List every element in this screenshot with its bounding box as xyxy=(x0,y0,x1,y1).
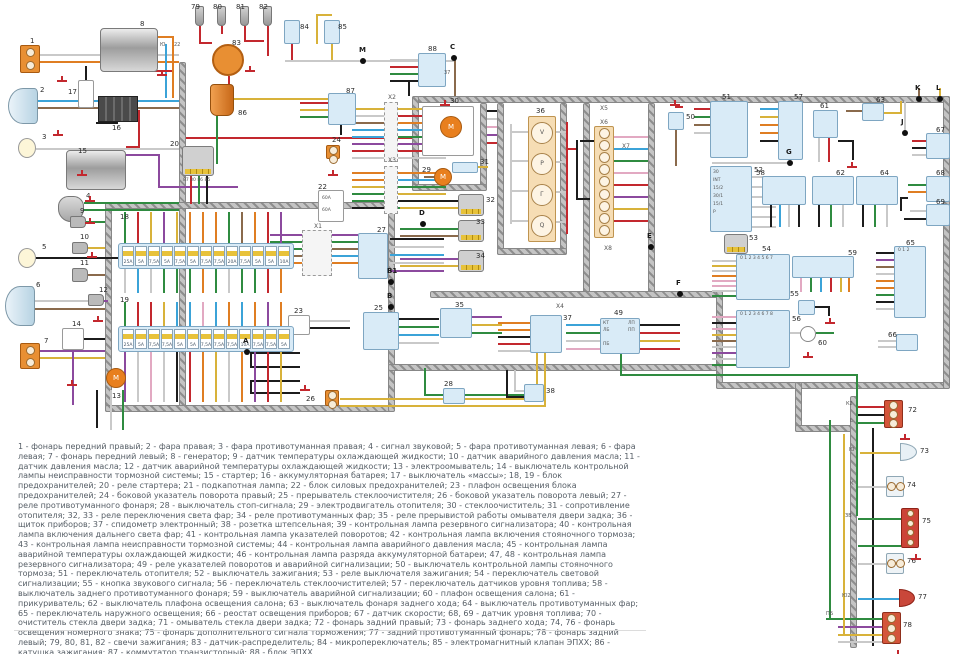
junction-node-B xyxy=(388,304,394,310)
wire-segment xyxy=(614,148,648,150)
wire-segment xyxy=(352,150,384,152)
junction-label-M: M xyxy=(359,46,366,54)
lamp-cell-icon xyxy=(329,146,338,155)
lamp-cell-icon xyxy=(907,539,914,546)
wire-label: 15/2 xyxy=(713,186,723,193)
wire-label: ПП xyxy=(628,328,635,335)
wire-segment xyxy=(228,212,230,243)
wire-segment xyxy=(862,205,864,227)
wire-segment xyxy=(189,302,191,326)
wire-segment xyxy=(694,108,710,110)
wire-segment xyxy=(244,26,246,40)
component-number-31: 31 xyxy=(480,158,489,166)
component-9 xyxy=(70,216,86,228)
lamp-cell-icon xyxy=(907,520,914,527)
wire-segment xyxy=(614,160,648,162)
wire-label: 60A xyxy=(322,208,331,215)
wire-segment xyxy=(454,60,456,96)
wire-segment xyxy=(163,352,165,402)
wire-segment xyxy=(838,641,882,643)
wire-label: КТ xyxy=(603,321,609,328)
indicator-lamp-icon xyxy=(599,213,610,224)
gauge-Q: Q xyxy=(531,215,553,237)
wire-segment xyxy=(189,212,191,243)
wire-segment xyxy=(840,278,842,292)
wire-segment xyxy=(352,200,384,202)
component-29: M xyxy=(434,168,452,186)
fuse-F9: 20A xyxy=(226,246,238,266)
wire-segment xyxy=(390,59,418,61)
wire-segment xyxy=(912,147,926,149)
wire-segment xyxy=(189,269,191,293)
wire-label: Ю2 xyxy=(842,593,851,601)
wire-label: L xyxy=(850,418,853,426)
ground-icon xyxy=(57,76,67,83)
lamp-cell-icon xyxy=(887,614,896,623)
component-22 xyxy=(318,190,344,222)
wire-segment xyxy=(856,376,858,516)
wire-label: ЛП xyxy=(628,321,635,328)
component-number-65: 65 xyxy=(906,239,915,247)
wire-label: 87 30 86 85 xyxy=(183,178,210,185)
wire-segment xyxy=(828,306,830,316)
ground-icon xyxy=(53,130,63,137)
wire-segment xyxy=(215,352,217,402)
wire-label: X7 xyxy=(622,142,630,151)
wire-segment xyxy=(566,332,600,334)
ground-icon xyxy=(803,352,813,359)
wire-segment xyxy=(472,324,502,326)
wire-segment xyxy=(398,157,446,159)
component-66 xyxy=(896,334,918,351)
wire-segment xyxy=(510,124,512,224)
component-83 xyxy=(212,44,244,76)
wire-label: 30/1 xyxy=(713,194,723,201)
wire-segment xyxy=(760,132,778,134)
wire-segment xyxy=(912,140,926,142)
wire-segment xyxy=(408,82,410,96)
wire-segment xyxy=(614,208,648,210)
wire-segment xyxy=(332,248,358,250)
wire-segment xyxy=(858,406,884,408)
wire-segment xyxy=(640,340,680,342)
wire-label: 30 xyxy=(713,170,719,177)
harness-bus xyxy=(480,103,487,191)
component-number-2: 2 xyxy=(40,86,44,94)
fuse-F21: 5A xyxy=(187,329,199,349)
component-28 xyxy=(443,388,465,404)
indicator-lamp-icon xyxy=(599,140,610,151)
wire-segment xyxy=(506,396,524,398)
fuse-F27: 7,5A xyxy=(265,329,277,349)
component-number-68: 68 xyxy=(936,169,945,177)
wire-segment xyxy=(202,302,204,326)
wire-segment xyxy=(137,302,139,326)
junction-node-G xyxy=(787,160,793,166)
wire-segment xyxy=(332,234,358,236)
wire-segment xyxy=(400,235,458,237)
fuse-F19: 7,5A xyxy=(161,329,173,349)
wire-segment xyxy=(712,295,736,297)
wire-segment xyxy=(254,352,256,402)
component-number-18: 18 xyxy=(120,213,129,221)
wire-segment xyxy=(815,306,829,308)
component-number-30: 30 xyxy=(450,97,459,105)
wire-segment xyxy=(472,332,502,334)
component-number-82: 82 xyxy=(259,3,268,11)
wire-segment xyxy=(556,191,566,193)
component-76 xyxy=(886,553,904,574)
wire-segment xyxy=(556,161,566,163)
junction-label-E: E xyxy=(647,232,652,240)
harness-bus xyxy=(179,62,186,410)
lamp-cell-icon xyxy=(26,358,35,367)
component-number-37: 37 xyxy=(563,314,572,322)
component-number-77: 77 xyxy=(918,593,927,601)
junction-node-C xyxy=(451,55,457,61)
wire-segment xyxy=(352,136,384,138)
wire-segment xyxy=(390,66,418,68)
fuse-F23: 7,5A xyxy=(213,329,225,349)
wire-segment xyxy=(826,618,882,620)
wire-segment xyxy=(640,332,680,334)
wire-segment xyxy=(352,157,384,159)
component-number-7: 7 xyxy=(44,337,48,345)
wire-segment xyxy=(390,262,444,264)
fuse-F11: 5A xyxy=(252,246,264,266)
wire-segment xyxy=(798,205,800,227)
fuse-F24: 7,5A xyxy=(226,329,238,349)
wire-segment xyxy=(900,197,908,199)
wire-segment xyxy=(752,226,776,228)
junction-node-B1 xyxy=(388,279,394,285)
wire-segment xyxy=(860,452,900,454)
component-number-11: 11 xyxy=(80,259,89,267)
indicator-lamp-icon xyxy=(599,201,610,212)
component-number-12: 12 xyxy=(99,286,108,294)
wire-segment xyxy=(556,221,566,223)
ground-icon xyxy=(67,380,77,387)
fuse-F28: 5A xyxy=(278,329,290,349)
wire-segment xyxy=(84,202,179,204)
wire-segment xyxy=(878,340,896,342)
wire-segment xyxy=(216,116,218,164)
junction-label-L: L xyxy=(936,84,940,92)
wire-segment xyxy=(620,374,858,376)
component-number-86: 86 xyxy=(238,109,247,117)
fuse-F5: 7,5A xyxy=(174,246,186,266)
component-number-1: 1 xyxy=(30,37,34,45)
wire-segment xyxy=(176,269,178,293)
harness-bus xyxy=(795,425,857,432)
component-61 xyxy=(813,110,838,138)
harness-bus xyxy=(583,103,590,298)
wire-segment xyxy=(300,102,328,104)
fuse-F18: 7,5A xyxy=(148,329,160,349)
component-number-61: 61 xyxy=(820,102,829,110)
component-number-9: 9 xyxy=(80,207,84,215)
component-number-64: 64 xyxy=(880,169,889,177)
wire-segment xyxy=(241,269,243,293)
junction-node-K xyxy=(916,96,922,102)
wire-segment xyxy=(250,352,300,354)
wire-label: X5 xyxy=(600,104,608,113)
wire-segment xyxy=(830,205,832,227)
component-number-57: 57 xyxy=(794,93,803,101)
component-X2 xyxy=(384,102,398,162)
component-number-80: 80 xyxy=(213,3,222,11)
wire-segment xyxy=(576,198,590,200)
wire-segment xyxy=(390,73,418,75)
wire-segment xyxy=(158,154,160,188)
junction-label-B: B xyxy=(387,292,392,300)
wire-segment xyxy=(126,154,160,156)
wire-segment xyxy=(640,348,680,350)
component-17 xyxy=(78,80,94,108)
junction-label-B1: B1 xyxy=(387,267,397,275)
wire-segment xyxy=(487,126,497,128)
component-number-38: 38 xyxy=(546,387,555,395)
wire-segment xyxy=(352,179,384,181)
component-86 xyxy=(210,84,234,116)
wire-segment xyxy=(340,405,546,407)
junction-node-F xyxy=(677,291,683,297)
wire-segment xyxy=(228,269,230,293)
wire-segment xyxy=(712,275,736,277)
wire-segment xyxy=(910,210,926,212)
component-37 xyxy=(530,315,562,353)
component-number-69: 69 xyxy=(936,198,945,206)
fuse-F26: 7,5A xyxy=(252,329,264,349)
wire-segment xyxy=(846,110,862,112)
component-55 xyxy=(798,300,815,315)
wire-segment xyxy=(556,131,566,133)
wire-segment xyxy=(876,252,894,254)
wire-segment xyxy=(576,140,578,200)
component-number-84: 84 xyxy=(300,23,309,31)
component-number-75: 75 xyxy=(922,517,931,525)
ground-icon xyxy=(300,385,310,392)
wire-segment xyxy=(202,352,204,402)
ground-icon xyxy=(87,252,97,259)
wire-segment xyxy=(310,327,350,329)
component-8 xyxy=(100,28,158,72)
wire-segment xyxy=(752,206,776,208)
component-10 xyxy=(72,242,88,254)
wire-segment xyxy=(215,269,217,293)
lamp-cell-icon xyxy=(889,419,898,428)
wire-segment xyxy=(250,366,300,368)
component-number-63: 63 xyxy=(876,96,885,104)
wire-segment xyxy=(512,190,528,192)
wire-label: X6 xyxy=(600,118,608,127)
wire-segment xyxy=(694,116,710,118)
wire-segment xyxy=(390,238,444,240)
wire-segment xyxy=(788,205,790,227)
component-3 xyxy=(18,138,36,158)
wire-segment xyxy=(712,316,736,318)
component-number-51: 51 xyxy=(722,93,731,101)
wire-segment xyxy=(712,334,736,336)
component-58 xyxy=(762,176,806,205)
wire-segment xyxy=(137,212,139,243)
wire-segment xyxy=(332,241,358,243)
wire-segment xyxy=(352,143,384,145)
component-88 xyxy=(418,53,446,87)
wire-label: К2 xyxy=(846,401,853,409)
harness-bus xyxy=(648,103,655,298)
wire-segment xyxy=(126,146,140,148)
component-51 xyxy=(710,101,748,158)
wire-segment xyxy=(150,212,152,243)
fuse-F6: 5A xyxy=(187,246,199,266)
harness-bus xyxy=(716,382,950,389)
lamp-cell-icon xyxy=(887,482,896,491)
wire-segment xyxy=(908,184,926,186)
wire-segment xyxy=(566,340,600,342)
component-62 xyxy=(812,176,854,205)
component-31 xyxy=(452,162,478,173)
component-number-20: 20 xyxy=(170,140,179,148)
wire-segment xyxy=(176,302,178,326)
wire-segment xyxy=(400,228,458,230)
component-X3 xyxy=(384,166,398,214)
wire-segment xyxy=(96,390,98,428)
component-32 xyxy=(458,194,484,216)
wire-segment xyxy=(291,44,293,60)
wire-segment xyxy=(580,140,594,142)
lamp-cell-icon xyxy=(887,559,896,568)
wire-segment xyxy=(712,280,736,282)
fuse-F20: 5A xyxy=(174,329,186,349)
wire-segment xyxy=(340,125,342,135)
wire-segment xyxy=(487,134,497,136)
component-77 xyxy=(899,589,915,607)
component-13: M xyxy=(106,368,126,388)
wire-segment xyxy=(399,342,439,344)
wire-segment xyxy=(712,285,736,287)
wire-segment xyxy=(828,138,830,162)
wire-segment xyxy=(566,122,568,234)
wire-segment xyxy=(614,184,648,186)
wire-label: X3 xyxy=(388,156,396,165)
junction-node-L xyxy=(937,96,943,102)
wire-segment xyxy=(250,352,252,366)
wire-segment xyxy=(163,212,165,243)
component-X7s xyxy=(594,126,614,238)
wire-segment xyxy=(138,110,140,146)
component-number-72: 72 xyxy=(908,406,917,414)
harness-bus xyxy=(497,248,567,255)
component-36: VPГQ xyxy=(528,116,556,242)
component-number-81: 81 xyxy=(236,3,245,11)
wire-segment xyxy=(228,76,230,84)
wire-segment xyxy=(241,212,243,243)
wire-label: INT xyxy=(713,178,720,185)
wire-label: 37 xyxy=(444,70,450,78)
wire-segment xyxy=(620,354,622,376)
harness-bus xyxy=(388,364,722,371)
component-number-15: 15 xyxy=(78,147,87,155)
ground-icon xyxy=(85,218,95,225)
wire-segment xyxy=(810,278,812,292)
wire-segment xyxy=(399,326,439,328)
component-number-50: 50 xyxy=(686,113,695,121)
component-number-25: 25 xyxy=(374,304,383,312)
component-number-58: 58 xyxy=(756,169,765,177)
wire-segment xyxy=(280,302,282,326)
lamp-cell-icon xyxy=(907,529,914,536)
component-number-35: 35 xyxy=(455,301,464,309)
lamp-cell-icon xyxy=(887,634,896,643)
component-35 xyxy=(440,308,472,338)
wire-segment xyxy=(390,246,444,248)
wire-segment xyxy=(310,320,350,322)
wire-segment xyxy=(760,140,778,142)
component-number-56: 56 xyxy=(792,315,801,323)
component-6 xyxy=(5,286,35,326)
wire-label: 0 1 2 xyxy=(898,248,909,255)
lamp-cell-icon xyxy=(26,48,35,57)
wire-label: ЗВ xyxy=(845,513,852,521)
wire-segment xyxy=(712,322,736,324)
component-number-59: 59 xyxy=(848,249,857,257)
wire-segment xyxy=(352,186,384,188)
lamp-cell-icon xyxy=(896,482,905,491)
wire-label: 22 xyxy=(174,42,180,50)
fuse-F22: 7,5A xyxy=(200,329,212,349)
component-7 xyxy=(20,343,40,369)
fuse-F8: 7,5A xyxy=(213,246,225,266)
wire-segment xyxy=(202,212,204,243)
wire-segment xyxy=(487,142,497,144)
component-14 xyxy=(62,328,84,350)
wire-segment xyxy=(858,545,901,547)
wire-label: X8 xyxy=(604,244,612,253)
wire-segment xyxy=(254,269,256,293)
wire-segment xyxy=(514,390,524,392)
wire-segment xyxy=(228,302,230,326)
component-67 xyxy=(926,133,950,159)
wire-segment xyxy=(199,42,212,44)
component-number-17: 17 xyxy=(68,88,77,96)
wire-segment xyxy=(838,634,882,636)
wire-segment xyxy=(712,260,736,262)
wire-segment xyxy=(512,131,528,133)
wire-segment xyxy=(818,205,820,227)
wire-segment xyxy=(267,212,269,243)
wire-segment xyxy=(843,434,845,634)
component-16 xyxy=(98,96,138,122)
wire-label: X4 xyxy=(556,302,564,311)
wire-segment xyxy=(675,130,677,166)
component-number-33: 33 xyxy=(476,218,485,226)
fuse-block-19: 25A5A7,5A7,5A5A5A7,5A7,5A7,5A10A7,5A7,5A… xyxy=(118,326,294,352)
component-number-36: 36 xyxy=(536,107,545,115)
component-number-73: 73 xyxy=(920,447,929,455)
wire-segment xyxy=(498,350,530,352)
wire-segment xyxy=(215,212,217,243)
component-11 xyxy=(72,268,88,282)
wire-segment xyxy=(35,308,105,310)
wire-segment xyxy=(400,265,458,267)
wire-segment xyxy=(280,212,282,243)
wire-segment xyxy=(254,212,256,243)
ground-icon xyxy=(893,650,903,654)
wire-segment xyxy=(779,205,781,227)
wire-segment xyxy=(712,328,736,330)
wire-segment xyxy=(712,290,736,292)
